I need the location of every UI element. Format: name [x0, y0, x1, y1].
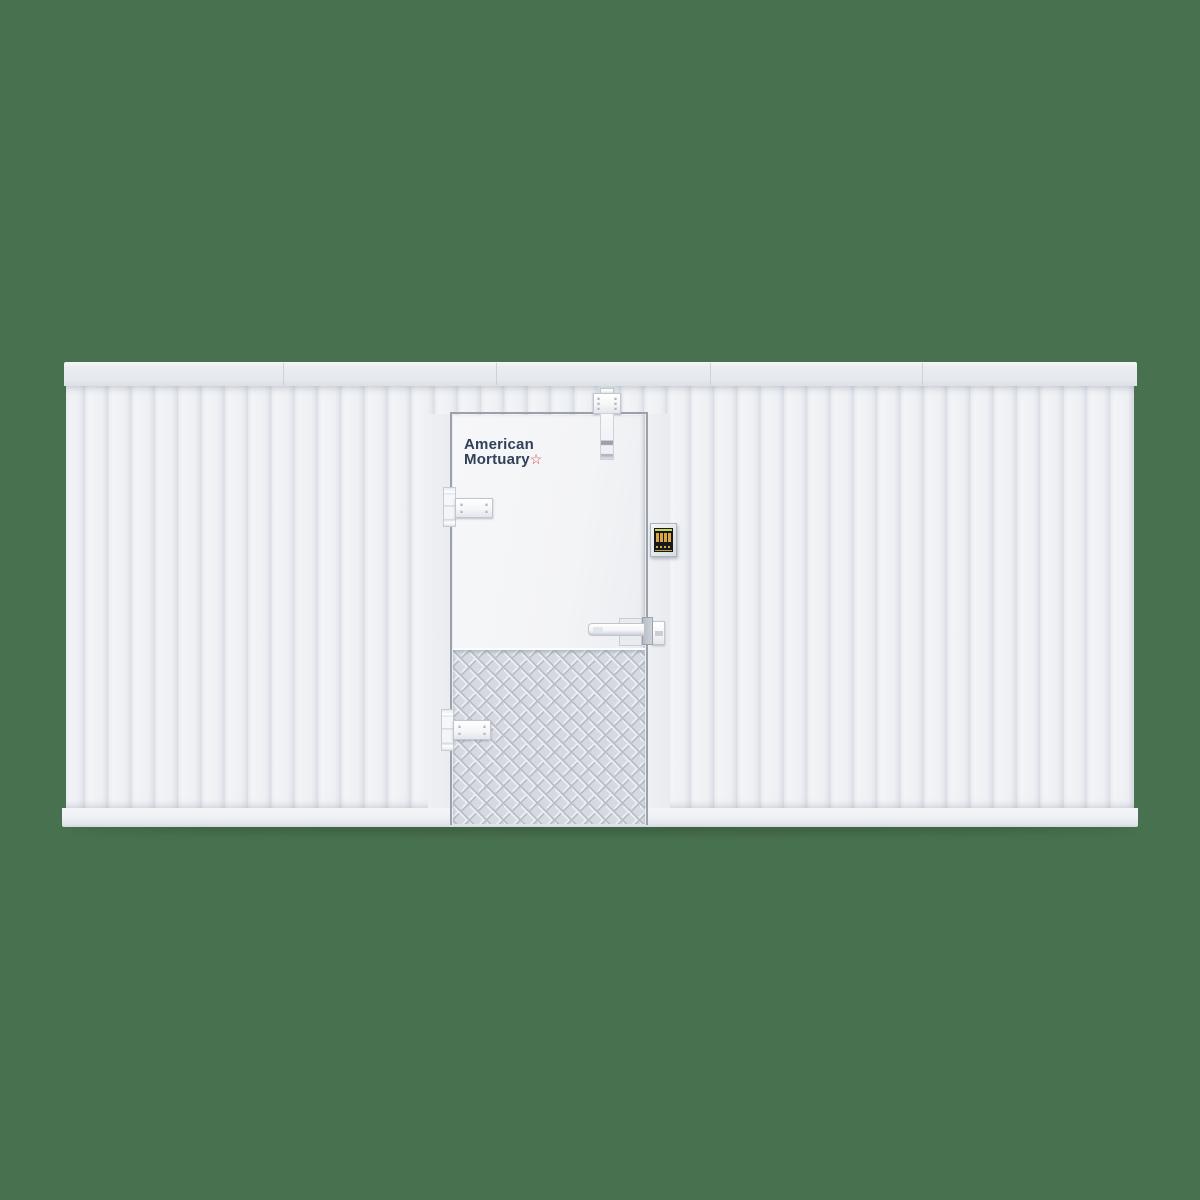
display-indicator-dots [656, 546, 671, 548]
top-hinge-leaf [455, 498, 493, 518]
logo-line1: American [464, 437, 543, 452]
display-status-bar [655, 529, 672, 531]
temperature-display [650, 523, 677, 557]
temperature-display-screen [654, 528, 673, 552]
wall-top-cap [64, 362, 1137, 386]
product-render-scene: American Mortuary☆ [0, 0, 1200, 1200]
latch-strike [652, 621, 665, 645]
door-jamb-right [646, 414, 670, 808]
door-closer-mount-plate [593, 393, 621, 414]
logo-star-icon: ☆ [530, 451, 543, 467]
door-closer-body [600, 413, 614, 460]
cap-seam [283, 363, 284, 385]
cap-seam [496, 363, 497, 385]
cap-seam [710, 363, 711, 385]
display-bottom-bar [655, 550, 672, 551]
latch-handle-bar [588, 623, 645, 636]
display-amber-digits [656, 533, 671, 542]
bottom-hinge-leaf [453, 720, 491, 740]
logo-line2: Mortuary☆ [464, 452, 543, 467]
cap-seam [922, 363, 923, 385]
brand-logo: American Mortuary☆ [464, 437, 543, 467]
cooler-door [453, 415, 645, 822]
